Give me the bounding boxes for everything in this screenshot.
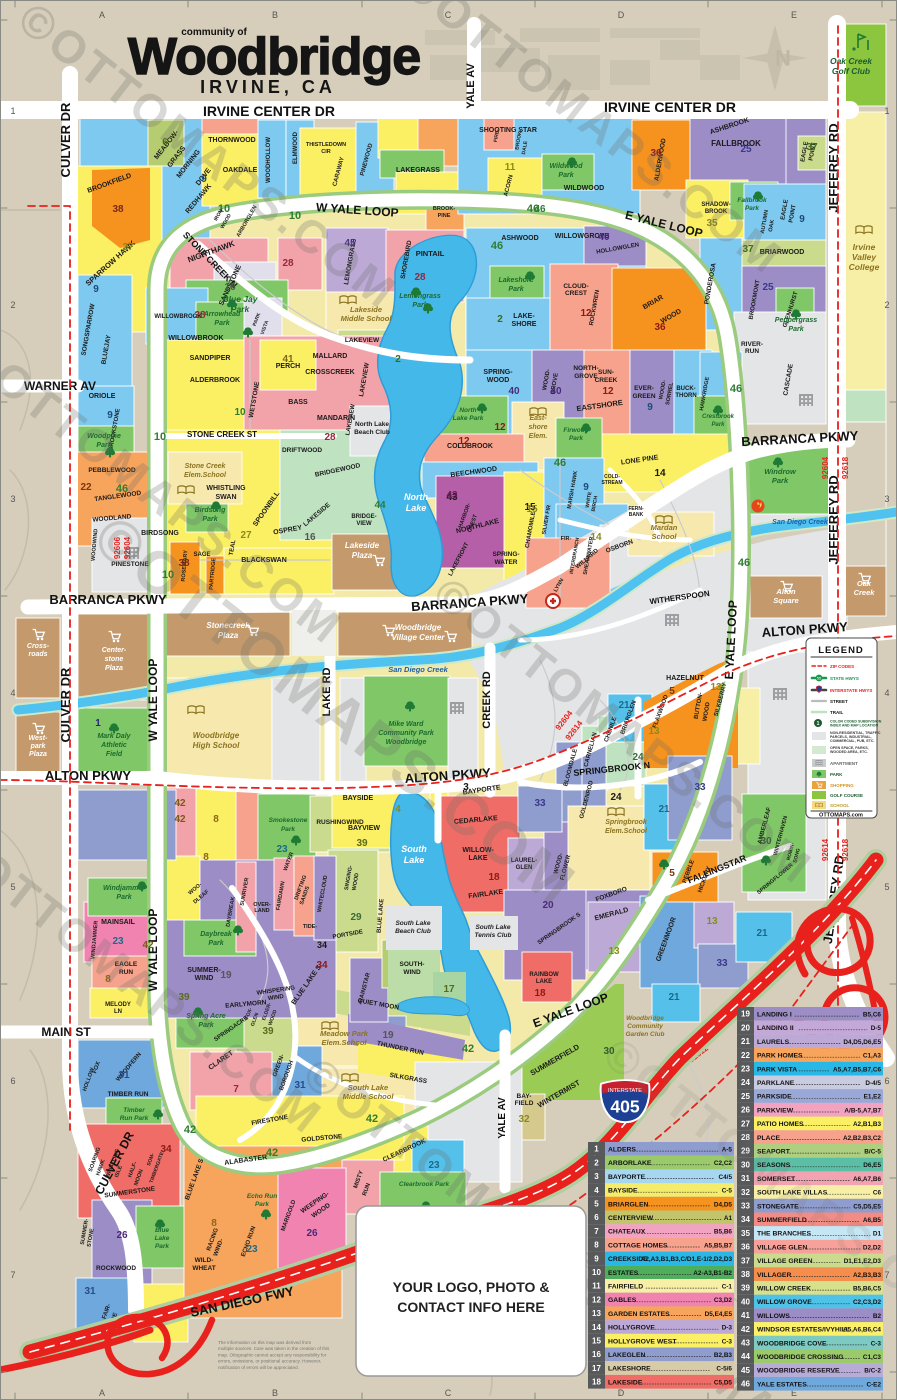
svg-text:STONE CREEK ST: STONE CREEK ST — [187, 430, 257, 439]
svg-text:12: 12 — [458, 436, 470, 447]
svg-text:Mardan: Mardan — [651, 523, 678, 532]
svg-text:D-4/5: D-4/5 — [865, 1080, 881, 1087]
svg-text:WHISTLING: WHISTLING — [206, 485, 246, 492]
svg-text:34: 34 — [160, 1144, 172, 1155]
svg-text:LAKEGRASS: LAKEGRASS — [396, 167, 440, 174]
svg-text:BAYSIDE: BAYSIDE — [343, 795, 374, 802]
svg-text:19: 19 — [382, 1030, 394, 1041]
svg-text:2: 2 — [10, 300, 15, 310]
svg-text:PARKLANE: PARKLANE — [757, 1080, 795, 1087]
svg-text:High School: High School — [193, 741, 240, 750]
svg-text:STATE HWYS: STATE HWYS — [830, 676, 859, 681]
svg-text:YALE AV: YALE AV — [465, 63, 477, 109]
svg-text:MAINSAIL: MAINSAIL — [101, 919, 136, 926]
svg-text:16: 16 — [224, 282, 236, 293]
svg-text:WATER: WATER — [495, 559, 518, 566]
svg-text:APARTMENT: APARTMENT — [830, 761, 858, 766]
svg-text:FIELD: FIELD — [515, 1100, 534, 1107]
svg-text:THE BRANCHES: THE BRANCHES — [757, 1231, 811, 1238]
svg-text:CULVER DR: CULVER DR — [58, 102, 73, 177]
svg-text:BAYVIEW: BAYVIEW — [348, 825, 380, 832]
svg-text:D-3: D-3 — [722, 1325, 733, 1332]
svg-text:16: 16 — [592, 1350, 601, 1359]
svg-text:WIND: WIND — [403, 969, 421, 976]
svg-text:shore: shore — [528, 424, 547, 431]
svg-text:C4/5: C4/5 — [719, 1174, 733, 1181]
svg-text:14: 14 — [654, 468, 666, 479]
svg-text:D-5: D-5 — [871, 1025, 882, 1032]
svg-text:BRIDGE-: BRIDGE- — [351, 514, 376, 520]
svg-text:24: 24 — [610, 792, 622, 803]
svg-text:2: 2 — [395, 354, 401, 365]
svg-text:21: 21 — [756, 928, 768, 939]
svg-text:E1,E2: E1,E2 — [864, 1094, 882, 1101]
svg-text:PINTAIL: PINTAIL — [416, 249, 445, 258]
svg-text:17: 17 — [443, 984, 455, 995]
svg-text:SHORE: SHORE — [512, 321, 537, 328]
svg-text:notification of errors will be: notification of errors will be appreciat… — [218, 1365, 299, 1370]
svg-text:37: 37 — [741, 1256, 750, 1265]
svg-text:C-3: C-3 — [722, 1338, 733, 1345]
svg-text:SUN-: SUN- — [598, 369, 614, 376]
svg-text:GOLF COURSE: GOLF COURSE — [830, 793, 863, 798]
svg-text:10: 10 — [592, 1268, 601, 1277]
svg-text:6: 6 — [10, 1076, 15, 1086]
svg-text:B/C-2: B/C-2 — [864, 1368, 881, 1375]
svg-text:Lake: Lake — [406, 503, 427, 513]
svg-text:Lake: Lake — [404, 855, 425, 865]
svg-text:WILLOWS: WILLOWS — [757, 1313, 790, 1320]
svg-text:North Lake: North Lake — [355, 421, 389, 428]
svg-text:College: College — [849, 262, 880, 272]
svg-text:B: B — [272, 10, 278, 20]
svg-text:WINDSOR ESTATES/IVYHILL: WINDSOR ESTATES/IVYHILL — [757, 1327, 850, 1334]
svg-text:South: South — [401, 844, 427, 854]
svg-text:STREAM: STREAM — [601, 480, 622, 486]
svg-text:WILD-: WILD- — [195, 1257, 214, 1264]
svg-text:12: 12 — [602, 386, 614, 397]
svg-text:MALLARD: MALLARD — [313, 353, 348, 360]
svg-text:Windrow: Windrow — [764, 467, 797, 476]
svg-text:INDEX AND MAP LOCATION: INDEX AND MAP LOCATION — [830, 724, 878, 728]
svg-text:VIEW: VIEW — [356, 521, 372, 527]
svg-text:MAIN ST: MAIN ST — [41, 1025, 91, 1039]
svg-text:LAKEVIEW: LAKEVIEW — [345, 337, 380, 344]
svg-text:B5,C6: B5,C6 — [863, 1012, 882, 1019]
svg-text:34: 34 — [316, 960, 328, 971]
svg-text:18: 18 — [592, 1378, 601, 1387]
svg-text:WIND: WIND — [195, 975, 214, 982]
svg-text:San Diego Creek: San Diego Creek — [388, 665, 448, 674]
svg-text:C: C — [445, 10, 452, 20]
svg-text:40: 40 — [550, 386, 562, 397]
svg-text:44: 44 — [741, 1352, 750, 1361]
svg-text:Daybreak: Daybreak — [200, 931, 233, 938]
svg-text:35: 35 — [741, 1229, 750, 1238]
svg-text:22: 22 — [741, 1051, 750, 1060]
svg-text:INTERSTATE HWYS: INTERSTATE HWYS — [830, 688, 872, 693]
svg-text:ZIP CODES: ZIP CODES — [830, 664, 854, 669]
svg-text:92614: 92614 — [821, 838, 830, 861]
svg-text:33: 33 — [534, 798, 546, 809]
svg-text:C5,D5: C5,D5 — [714, 1379, 733, 1386]
svg-text:LAKESHORE: LAKESHORE — [608, 1366, 651, 1373]
svg-text:19: 19 — [741, 1010, 750, 1019]
svg-text:33: 33 — [716, 958, 728, 969]
svg-text:Elem.: Elem. — [529, 433, 548, 440]
svg-text:ALDERS: ALDERS — [608, 1147, 636, 1154]
svg-text:Lakeside: Lakeside — [345, 541, 380, 550]
svg-text:B: B — [272, 1388, 278, 1398]
svg-text:ASHWOOD: ASHWOOD — [501, 235, 538, 242]
svg-text:15: 15 — [592, 1337, 601, 1346]
svg-text:WILDWOOD: WILDWOOD — [564, 185, 604, 192]
svg-text:32: 32 — [518, 1114, 530, 1125]
svg-text:31: 31 — [118, 1070, 130, 1081]
svg-text:Park: Park — [558, 172, 574, 179]
svg-text:Park: Park — [214, 320, 230, 327]
svg-text:LANDING II: LANDING II — [757, 1025, 794, 1032]
svg-text:GREEN: GREEN — [632, 393, 655, 400]
svg-text:46: 46 — [738, 557, 750, 569]
svg-text:ARBORLAKE: ARBORLAKE — [608, 1160, 652, 1167]
svg-text:PINE: PINE — [438, 213, 451, 219]
svg-text:SCHOOL: SCHOOL — [830, 803, 850, 808]
svg-text:42: 42 — [462, 1043, 474, 1055]
svg-text:9: 9 — [799, 214, 805, 225]
svg-text:C-5/6: C-5/6 — [716, 1366, 732, 1373]
svg-text:38: 38 — [112, 204, 124, 215]
svg-text:28: 28 — [194, 310, 206, 321]
svg-text:14: 14 — [592, 1323, 601, 1332]
svg-text:15: 15 — [526, 504, 538, 515]
svg-text:4: 4 — [10, 688, 15, 698]
svg-text:Beach Club: Beach Club — [354, 429, 390, 436]
svg-text:Run Park: Run Park — [120, 1115, 149, 1122]
svg-text:WOODBRIDGE COVE: WOODBRIDGE COVE — [757, 1340, 827, 1347]
svg-text:EVER-: EVER- — [634, 385, 654, 392]
svg-text:Park: Park — [788, 326, 804, 333]
svg-text:34: 34 — [741, 1215, 750, 1224]
svg-text:PARKVIEW: PARKVIEW — [757, 1107, 794, 1114]
svg-text:Center-: Center- — [102, 647, 127, 654]
svg-text:C3,D2: C3,D2 — [714, 1297, 733, 1304]
svg-text:B5,B6: B5,B6 — [714, 1229, 733, 1236]
svg-text:12: 12 — [494, 422, 506, 433]
svg-text:8: 8 — [211, 1218, 217, 1229]
svg-text:CIR: CIR — [321, 149, 331, 155]
svg-text:9: 9 — [583, 482, 589, 493]
svg-text:PATIO HOMES: PATIO HOMES — [757, 1121, 804, 1128]
svg-text:31: 31 — [84, 1286, 96, 1297]
svg-text:TIDE-: TIDE- — [303, 924, 318, 930]
svg-text:MANDARIN: MANDARIN — [317, 415, 355, 422]
svg-text:26: 26 — [741, 1106, 750, 1115]
svg-text:W YALE LOOP: W YALE LOOP — [146, 659, 160, 742]
svg-text:A/B-5,A7,B7: A/B-5,A7,B7 — [844, 1107, 881, 1114]
svg-text:BAYSIDE: BAYSIDE — [608, 1188, 638, 1195]
svg-text:C6: C6 — [873, 1190, 882, 1197]
svg-text:VILLAGE GREEN: VILLAGE GREEN — [757, 1258, 813, 1265]
svg-text:Park: Park — [155, 1243, 169, 1250]
svg-text:42: 42 — [142, 940, 154, 951]
svg-text:RUN: RUN — [745, 348, 759, 355]
svg-text:9: 9 — [107, 410, 113, 421]
svg-text:WOODBRIDGE CROSSING: WOODBRIDGE CROSSING — [757, 1354, 843, 1361]
svg-text:55: 55 — [817, 676, 822, 681]
svg-text:8: 8 — [594, 1241, 599, 1250]
svg-text:46: 46 — [730, 383, 742, 395]
svg-text:Creek: Creek — [854, 588, 876, 597]
svg-text:ALTON PKWY: ALTON PKWY — [45, 768, 132, 783]
svg-text:40: 40 — [598, 232, 610, 243]
svg-text:22: 22 — [80, 482, 92, 493]
svg-text:TRAIL: TRAIL — [830, 710, 843, 715]
svg-text:VILLAGE GLEN: VILLAGE GLEN — [757, 1244, 807, 1251]
svg-text:Park: Park — [711, 422, 725, 428]
svg-text:West-: West- — [29, 735, 49, 742]
svg-text:B/C-5: B/C-5 — [864, 1149, 881, 1156]
svg-text:39: 39 — [741, 1284, 750, 1293]
svg-text:8: 8 — [203, 852, 209, 863]
svg-text:The information on this map wa: The information on this map was derived … — [218, 1340, 311, 1345]
svg-text:Athletic: Athletic — [100, 742, 127, 749]
svg-text:7: 7 — [10, 1270, 15, 1280]
svg-text:PARK VISTA: PARK VISTA — [757, 1066, 797, 1073]
svg-text:WOODBRIDGE RESERVE: WOODBRIDGE RESERVE — [757, 1368, 840, 1375]
svg-text:Community: Community — [627, 1023, 663, 1030]
svg-text:4: 4 — [395, 804, 401, 815]
svg-text:CREST: CREST — [565, 290, 587, 297]
svg-text:21: 21 — [741, 1037, 750, 1046]
svg-text:CREEK RD: CREEK RD — [481, 671, 493, 729]
svg-text:21: 21 — [668, 992, 680, 1003]
svg-text:36: 36 — [654, 322, 666, 333]
svg-text:BANK: BANK — [629, 512, 644, 518]
svg-text:4: 4 — [594, 1186, 599, 1195]
svg-text:1: 1 — [884, 106, 889, 116]
svg-text:Park: Park — [569, 435, 583, 442]
svg-text:Park: Park — [208, 940, 224, 947]
svg-text:Plaza: Plaza — [352, 551, 373, 560]
svg-text:C-E2: C-E2 — [866, 1381, 881, 1388]
svg-text:23: 23 — [276, 844, 288, 855]
svg-text:40: 40 — [741, 1297, 750, 1306]
svg-text:LEGEND: LEGEND — [818, 645, 864, 656]
svg-text:C1,A3: C1,A3 — [863, 1053, 882, 1060]
svg-text:5: 5 — [669, 686, 675, 697]
svg-text:C-5: C-5 — [722, 1188, 733, 1195]
svg-text:42: 42 — [741, 1325, 750, 1334]
svg-text:1: 1 — [817, 721, 820, 727]
svg-text:D: D — [618, 10, 625, 20]
svg-text:Blue Jay: Blue Jay — [223, 294, 259, 304]
svg-text:A6,A7,B6: A6,A7,B6 — [853, 1176, 882, 1183]
svg-text:ORIOLE: ORIOLE — [89, 393, 116, 400]
svg-text:RAINBOW: RAINBOW — [529, 972, 559, 978]
svg-text:A2,B1,B3: A2,B1,B3 — [853, 1121, 882, 1128]
svg-text:Valley: Valley — [852, 252, 878, 262]
svg-text:E: E — [791, 10, 797, 20]
svg-text:STREET: STREET — [830, 699, 848, 704]
svg-text:Wildwood: Wildwood — [550, 163, 584, 170]
svg-text:WILLOW CREEK: WILLOW CREEK — [757, 1286, 811, 1293]
svg-text:SPRING-: SPRING- — [483, 369, 513, 376]
svg-text:A5,B5,B7: A5,B5,B7 — [704, 1242, 733, 1249]
svg-text:Smokestone: Smokestone — [269, 817, 308, 824]
svg-text:CHATEAUX: CHATEAUX — [608, 1229, 646, 1236]
svg-text:Elem.School: Elem.School — [321, 1038, 367, 1047]
svg-text:Park: Park — [116, 894, 132, 901]
svg-text:41: 41 — [741, 1311, 750, 1320]
svg-text:2: 2 — [594, 1158, 599, 1167]
svg-text:South Lake: South Lake — [395, 920, 430, 927]
svg-text:Beach Club: Beach Club — [395, 928, 431, 935]
svg-text:D4,D5,D6,E5: D4,D5,D6,E5 — [843, 1039, 881, 1046]
svg-text:3: 3 — [10, 494, 15, 504]
svg-text:13: 13 — [592, 1309, 601, 1318]
svg-text:Square: Square — [773, 596, 798, 605]
svg-text:43: 43 — [446, 490, 458, 501]
svg-text:D: D — [618, 1388, 625, 1398]
svg-text:N: N — [775, 46, 791, 71]
svg-text:RUSHINGWIND: RUSHINGWIND — [316, 819, 364, 826]
svg-text:6: 6 — [884, 1076, 889, 1086]
svg-text:33: 33 — [741, 1202, 750, 1211]
svg-text:GARDEN ESTATES: GARDEN ESTATES — [608, 1311, 670, 1318]
svg-text:LAKEGLEN: LAKEGLEN — [608, 1352, 645, 1359]
svg-text:IRVINE CENTER DR: IRVINE CENTER DR — [203, 103, 335, 119]
svg-text:SANDPIPER: SANDPIPER — [190, 355, 231, 362]
svg-text:A2,A3,B1,B3,C/D1,E-1/2,D2,D3: A2,A3,B1,B3,C/D1,E-1/2,D2,D3 — [641, 1256, 733, 1263]
svg-text:Park: Park — [255, 1201, 269, 1208]
svg-text:Stone Creek: Stone Creek — [185, 463, 227, 470]
svg-text:D4,D5: D4,D5 — [714, 1201, 733, 1208]
svg-text:7: 7 — [594, 1227, 599, 1236]
svg-text:92618: 92618 — [841, 456, 850, 479]
svg-text:OTTOMAPS.com: OTTOMAPS.com — [819, 813, 863, 819]
svg-text:THISTLEDOWN: THISTLEDOWN — [306, 142, 346, 148]
svg-text:GABLES: GABLES — [608, 1297, 637, 1304]
svg-text:CENTERVIEW: CENTERVIEW — [608, 1215, 654, 1222]
svg-text:C-3: C-3 — [871, 1340, 882, 1347]
svg-text:45: 45 — [741, 1366, 750, 1375]
svg-text:YALE AV: YALE AV — [497, 1097, 508, 1139]
svg-text:PARK HOMES: PARK HOMES — [757, 1053, 803, 1060]
svg-text:A2,B2,B3,C2: A2,B2,B3,C2 — [843, 1135, 881, 1142]
svg-text:SOUTH-: SOUTH- — [400, 961, 425, 968]
svg-text:D5,E4,E5: D5,E4,E5 — [705, 1311, 733, 1318]
svg-text:16: 16 — [304, 532, 316, 543]
svg-text:23: 23 — [246, 1244, 258, 1255]
svg-text:B2: B2 — [873, 1313, 882, 1320]
svg-text:3: 3 — [594, 1172, 599, 1181]
svg-text:18: 18 — [534, 988, 546, 999]
svg-text:34: 34 — [317, 940, 327, 950]
svg-text:SHOPPING: SHOPPING — [830, 783, 854, 788]
svg-text:28: 28 — [414, 272, 426, 283]
svg-text:11: 11 — [505, 162, 516, 173]
svg-text:DRIFTWOOD: DRIFTWOOD — [282, 447, 322, 454]
svg-text:Elem.School: Elem.School — [605, 828, 648, 835]
svg-text:roads: roads — [28, 651, 47, 658]
svg-text:1: 1 — [10, 106, 15, 116]
svg-text:28: 28 — [282, 258, 294, 269]
svg-text:13: 13 — [608, 946, 620, 957]
svg-text:PARK: PARK — [830, 772, 843, 777]
svg-text:COTTAGE HOMES: COTTAGE HOMES — [608, 1242, 668, 1249]
svg-text:Springbrook: Springbrook — [605, 819, 648, 826]
svg-text:ROCKWOOD: ROCKWOOD — [96, 1265, 136, 1272]
svg-text:multiple sources. Care was tak: multiple sources. Care was taken in the … — [218, 1346, 330, 1351]
svg-text:24: 24 — [741, 1078, 750, 1087]
svg-text:43: 43 — [741, 1339, 750, 1348]
svg-text:LAND: LAND — [254, 908, 269, 914]
svg-text:5: 5 — [884, 882, 889, 892]
svg-text:92604: 92604 — [821, 456, 830, 479]
svg-text:IRVINE, CA: IRVINE, CA — [200, 77, 336, 97]
svg-text:map. Ottographic cannot accept: map. Ottographic cannot accept any respo… — [218, 1352, 327, 1357]
svg-text:Field: Field — [106, 751, 123, 758]
svg-text:errors, omissions, or position: errors, omissions, or positional accurac… — [218, 1359, 321, 1364]
svg-text:BUCK-: BUCK- — [676, 386, 695, 392]
svg-text:Park: Park — [772, 476, 789, 485]
svg-text:COMMERCIAL, PUB, ETC.: COMMERCIAL, PUB, ETC. — [830, 739, 875, 743]
svg-text:42: 42 — [174, 798, 186, 809]
svg-text:Plaza: Plaza — [29, 751, 47, 758]
svg-text:92618: 92618 — [841, 838, 850, 861]
svg-text:YALE ESTATES: YALE ESTATES — [757, 1381, 807, 1388]
svg-text:C2,C3,D2: C2,C3,D2 — [853, 1299, 882, 1306]
svg-text:CLOUD-: CLOUD- — [563, 283, 588, 290]
svg-text:13: 13 — [706, 916, 718, 927]
svg-text:26: 26 — [306, 1228, 318, 1239]
svg-text:23: 23 — [741, 1065, 750, 1074]
svg-text:LAKESIDE: LAKESIDE — [608, 1379, 643, 1386]
svg-text:10: 10 — [154, 431, 166, 443]
svg-text:17: 17 — [592, 1364, 601, 1373]
svg-text:9: 9 — [647, 402, 653, 413]
svg-text:19: 19 — [220, 970, 232, 981]
svg-text:YOUR LOGO, PHOTO &: YOUR LOGO, PHOTO & — [393, 1279, 550, 1295]
svg-text:park: park — [30, 743, 47, 750]
svg-text:5: 5 — [594, 1200, 599, 1209]
svg-text:HAZELNUT: HAZELNUT — [666, 675, 704, 682]
svg-text:2: 2 — [884, 300, 889, 310]
svg-text:5: 5 — [10, 882, 15, 892]
svg-text:25: 25 — [741, 1092, 750, 1101]
svg-text:A1: A1 — [724, 1215, 733, 1222]
svg-text:42: 42 — [184, 1124, 196, 1136]
svg-text:BRIARGLEN: BRIARGLEN — [608, 1201, 648, 1208]
svg-text:BROOK-: BROOK- — [433, 206, 455, 212]
svg-text:COLDBROOK: COLDBROOK — [447, 443, 493, 450]
svg-text:WHEAT: WHEAT — [192, 1265, 215, 1272]
svg-text:28: 28 — [324, 432, 336, 443]
svg-text:A5,A6,B6,C4: A5,A6,B6,C4 — [843, 1327, 881, 1334]
svg-text:Elem.School: Elem.School — [184, 472, 227, 479]
svg-text:PARKSIDE: PARKSIDE — [757, 1094, 792, 1101]
svg-text:9: 9 — [93, 284, 99, 295]
svg-text:LN: LN — [114, 1009, 122, 1015]
svg-text:26: 26 — [116, 1230, 128, 1241]
svg-text:THORN: THORN — [675, 393, 696, 399]
svg-text:Mark Daly: Mark Daly — [97, 733, 131, 740]
svg-text:42: 42 — [266, 1147, 278, 1159]
svg-text:12: 12 — [580, 308, 592, 319]
svg-text:San Diego Creek: San Diego Creek — [772, 519, 829, 526]
svg-text:42: 42 — [174, 814, 186, 825]
